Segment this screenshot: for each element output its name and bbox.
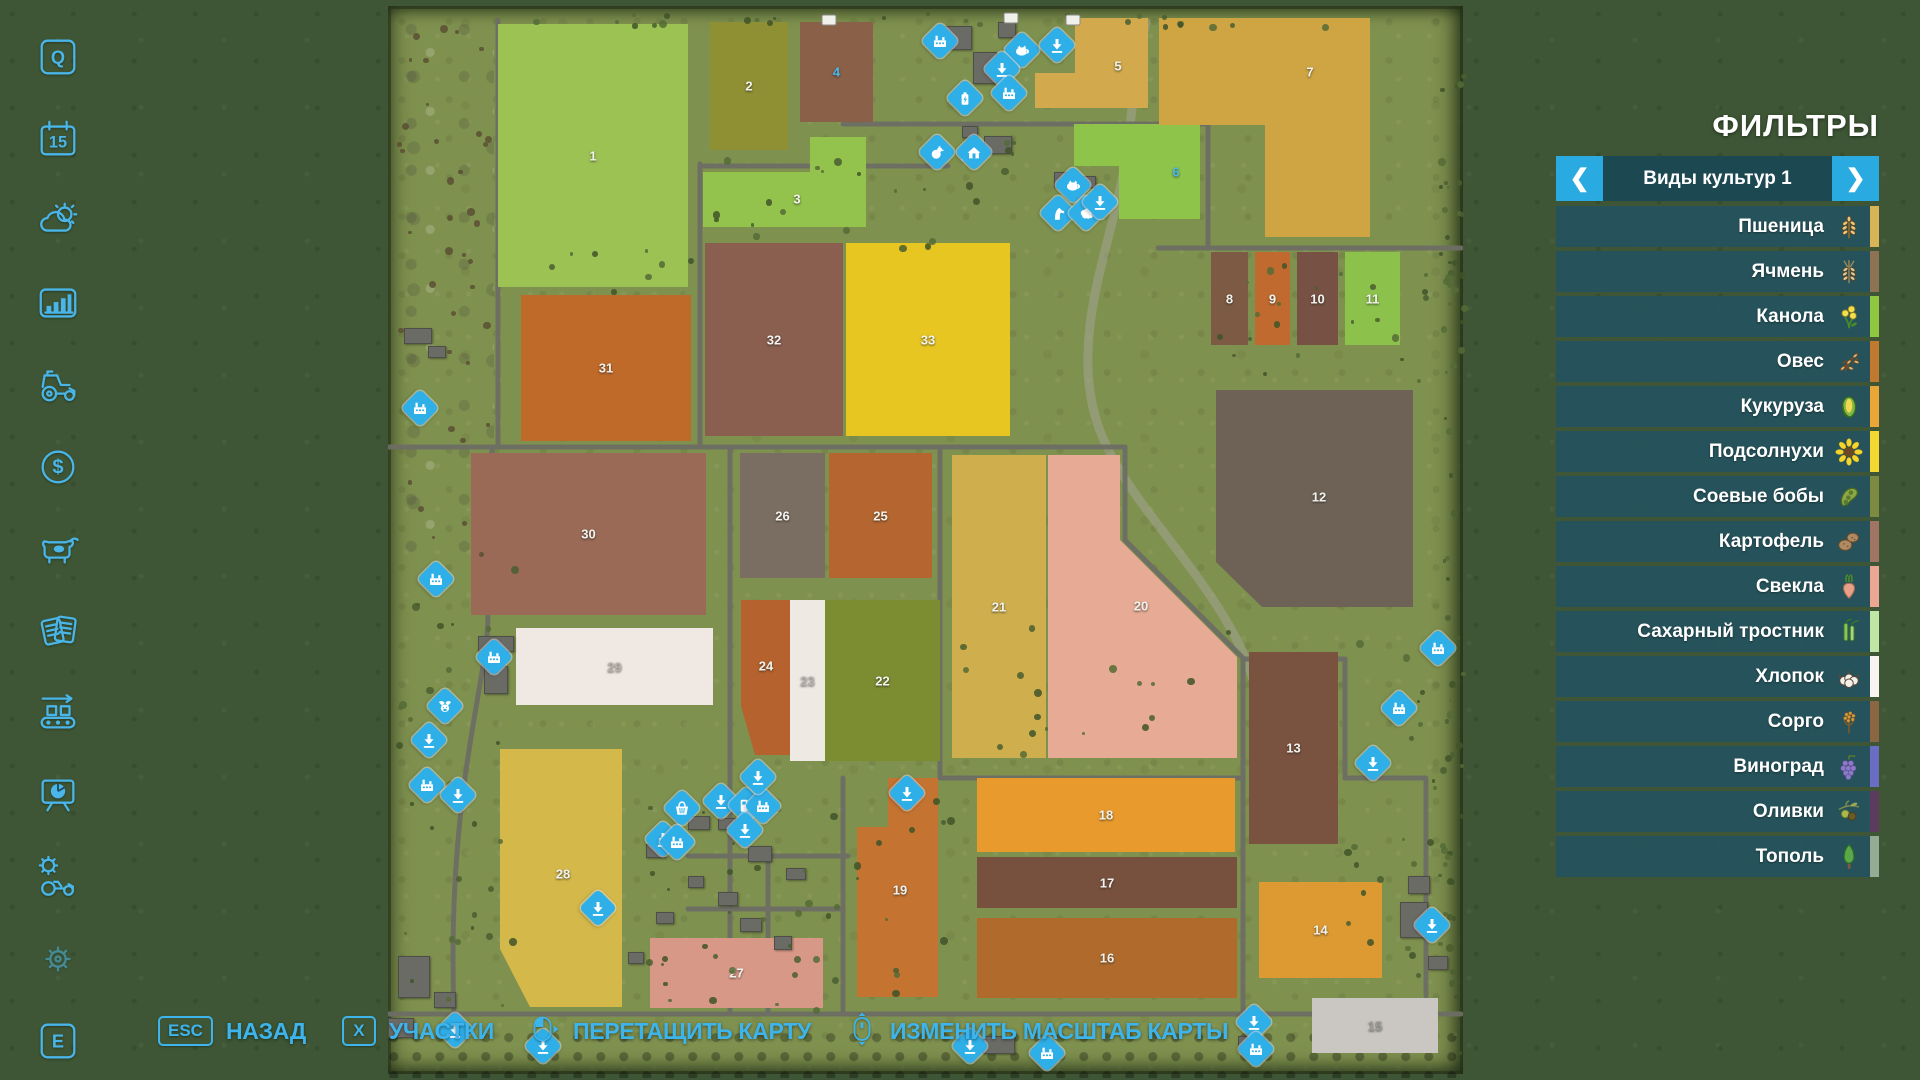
tree bbox=[1361, 890, 1367, 896]
map-building bbox=[656, 912, 674, 924]
crop-color-stripe bbox=[1870, 206, 1879, 247]
keybind-esc[interactable]: ESCНАЗАД bbox=[158, 1016, 306, 1046]
oat-icon bbox=[1832, 345, 1866, 379]
tree bbox=[941, 820, 946, 825]
crop-color-stripe bbox=[1870, 431, 1879, 472]
factory-icon bbox=[411, 399, 429, 417]
tree bbox=[834, 904, 840, 910]
tree bbox=[1440, 767, 1447, 774]
tree bbox=[977, 22, 982, 27]
tree bbox=[960, 644, 967, 651]
sidebar-item-presentation[interactable] bbox=[35, 772, 81, 818]
tree bbox=[1438, 158, 1446, 166]
tree bbox=[1315, 286, 1318, 289]
tree bbox=[1246, 281, 1249, 284]
field-number: 6 bbox=[1172, 165, 1179, 180]
sidebar-item-calendar[interactable]: 15 bbox=[35, 116, 81, 162]
crop-label: Ячмень bbox=[1752, 261, 1824, 283]
crop-filter-cotton[interactable]: Хлопок bbox=[1556, 656, 1879, 697]
tree bbox=[728, 911, 731, 914]
tree bbox=[1461, 305, 1468, 312]
tree bbox=[632, 23, 637, 28]
field-number: 24 bbox=[759, 659, 773, 674]
crop-filter-potato[interactable]: Картофель bbox=[1556, 521, 1879, 562]
tree bbox=[501, 1004, 504, 1007]
map-building bbox=[398, 956, 430, 998]
tree bbox=[947, 817, 955, 825]
tree bbox=[1452, 287, 1459, 294]
crop-color-stripe bbox=[1870, 521, 1879, 562]
crop-label: Соевые бобы bbox=[1693, 486, 1824, 508]
field-number: 25 bbox=[873, 508, 887, 523]
tree bbox=[1439, 185, 1443, 189]
crop-filter-list: ПшеницаЯчменьКанолаОвесКукурузаПодсолнух… bbox=[1556, 206, 1879, 877]
tree bbox=[498, 839, 503, 844]
tree bbox=[1226, 630, 1231, 635]
field-number: 8 bbox=[1226, 291, 1233, 306]
crop-filter-barley[interactable]: Ячмень bbox=[1556, 251, 1879, 292]
olive-icon bbox=[1832, 795, 1866, 829]
crop-category-selector: ❮ Виды культур 1 ❯ bbox=[1556, 156, 1879, 201]
svg-text:Q: Q bbox=[51, 48, 65, 68]
crop-color-stripe bbox=[1870, 566, 1879, 607]
tree bbox=[1403, 654, 1410, 661]
down-icon bbox=[736, 821, 754, 839]
crop-filter-canola[interactable]: Канола bbox=[1556, 296, 1879, 337]
contracts-icon bbox=[35, 608, 81, 654]
down-icon bbox=[1048, 36, 1066, 54]
key-badge: ESC bbox=[158, 1016, 213, 1046]
tree bbox=[668, 999, 672, 1003]
down-icon bbox=[712, 792, 730, 810]
tree bbox=[1461, 74, 1466, 79]
map-building bbox=[748, 846, 772, 862]
horse-icon bbox=[1049, 204, 1067, 222]
tree bbox=[1459, 1051, 1462, 1054]
settings-icon bbox=[35, 936, 81, 982]
tree bbox=[1438, 942, 1443, 947]
tree bbox=[1445, 719, 1450, 724]
down-icon bbox=[1091, 193, 1109, 211]
tree bbox=[483, 322, 490, 329]
crop-label: Картофель bbox=[1719, 531, 1824, 553]
tree bbox=[446, 997, 451, 1002]
tree bbox=[882, 16, 886, 20]
tree bbox=[1400, 358, 1403, 361]
beet-icon bbox=[1832, 570, 1866, 604]
tree bbox=[663, 982, 668, 987]
down-icon bbox=[420, 731, 438, 749]
tree bbox=[1445, 235, 1450, 240]
tree bbox=[570, 252, 573, 255]
sidebar-item-key-q[interactable]: Q bbox=[35, 34, 81, 80]
tree bbox=[476, 131, 482, 137]
field-number: 17 bbox=[1100, 875, 1114, 890]
factory-icon bbox=[1000, 84, 1018, 102]
tree bbox=[1450, 363, 1457, 370]
mouse-scroll-icon bbox=[847, 1012, 877, 1051]
tree bbox=[1125, 19, 1131, 25]
sidebar-item-key-e[interactable]: E bbox=[35, 1018, 81, 1064]
field-number: 31 bbox=[599, 361, 613, 376]
tree bbox=[398, 328, 403, 333]
tree bbox=[1424, 273, 1428, 277]
keybind-mouse-scroll[interactable]: ИЗМЕНИТЬ МАСШТАБ КАРТЫ bbox=[847, 1012, 1228, 1051]
tree bbox=[894, 972, 900, 978]
svg-text:E: E bbox=[52, 1032, 64, 1052]
tree bbox=[650, 871, 655, 876]
map-building bbox=[628, 952, 644, 964]
tree bbox=[780, 209, 786, 215]
vehicle-marker bbox=[1004, 13, 1019, 24]
prev-category-button[interactable]: ❮ bbox=[1556, 156, 1603, 201]
tree bbox=[1005, 147, 1012, 154]
field-number: 18 bbox=[1099, 808, 1113, 823]
filters-title: ФИЛЬТРЫ bbox=[1556, 108, 1879, 144]
tree bbox=[1137, 13, 1142, 18]
crop-color-stripe bbox=[1870, 656, 1879, 697]
sidebar-item-garage[interactable] bbox=[35, 854, 81, 900]
tree bbox=[1354, 862, 1360, 868]
tree bbox=[467, 208, 474, 215]
tree bbox=[1447, 914, 1452, 919]
tree bbox=[1455, 636, 1460, 641]
tree bbox=[1356, 640, 1364, 648]
tree bbox=[1209, 24, 1216, 31]
map-building bbox=[688, 876, 704, 888]
tree bbox=[511, 566, 519, 574]
tree bbox=[448, 426, 455, 433]
map-building bbox=[998, 22, 1016, 38]
keybind-mouse-drag[interactable]: ПЕРЕТАЩИТЬ КАРТУ bbox=[530, 1012, 811, 1051]
tree bbox=[1187, 678, 1195, 686]
tree bbox=[1409, 952, 1416, 959]
filters-panel: ФИЛЬТРЫ ❮ Виды культур 1 ❯ ПшеницаЯчмень… bbox=[1556, 108, 1879, 881]
field-number: 2 bbox=[745, 79, 752, 94]
bull-icon bbox=[436, 697, 454, 715]
map-building bbox=[434, 992, 456, 1008]
tree bbox=[486, 933, 493, 940]
field-number: 26 bbox=[775, 508, 789, 523]
tree bbox=[1109, 665, 1117, 673]
tree bbox=[455, 939, 460, 944]
sorghum-icon bbox=[1832, 705, 1866, 739]
tree bbox=[1045, 727, 1049, 731]
tree bbox=[1458, 347, 1465, 354]
map-building bbox=[718, 892, 738, 906]
field-number: 29 bbox=[607, 659, 621, 674]
vehicle-marker bbox=[822, 15, 837, 26]
tree bbox=[1416, 973, 1421, 978]
field-number: 5 bbox=[1114, 59, 1121, 74]
field-number: 16 bbox=[1100, 951, 1114, 966]
tree bbox=[1449, 980, 1456, 987]
field-number: 28 bbox=[556, 867, 570, 882]
tree bbox=[1217, 334, 1223, 340]
tree bbox=[894, 189, 898, 193]
farm-map[interactable]: 1234567891011121314151617181920212223242… bbox=[388, 6, 1463, 1074]
crop-filter-olive[interactable]: Оливки bbox=[1556, 791, 1879, 832]
tree bbox=[688, 258, 694, 264]
tree bbox=[1460, 212, 1465, 217]
soybean-icon bbox=[1832, 480, 1866, 514]
tree bbox=[1420, 690, 1425, 695]
map-building bbox=[1428, 956, 1448, 970]
tree bbox=[933, 798, 940, 805]
crop-label: Сахарный тростник bbox=[1637, 621, 1824, 643]
tree bbox=[645, 274, 651, 280]
sidebar-item-weather[interactable] bbox=[35, 198, 81, 244]
crop-color-stripe bbox=[1870, 746, 1879, 787]
crop-color-stripe bbox=[1870, 791, 1879, 832]
tree bbox=[652, 23, 657, 28]
tree bbox=[834, 158, 842, 166]
tree bbox=[445, 247, 453, 255]
tree bbox=[803, 869, 807, 873]
tree bbox=[462, 253, 466, 257]
crop-label: Виноград bbox=[1733, 756, 1824, 778]
crop-label: Свекла bbox=[1756, 576, 1824, 598]
chicken-icon bbox=[928, 143, 946, 161]
key-e-icon: E bbox=[35, 1018, 81, 1064]
tree bbox=[458, 170, 462, 174]
field-number: 1 bbox=[589, 148, 596, 163]
tree bbox=[400, 149, 405, 154]
tree bbox=[426, 687, 434, 695]
crop-color-stripe bbox=[1870, 611, 1879, 652]
crop-color-stripe bbox=[1870, 701, 1879, 742]
crop-filter-oat[interactable]: Овес bbox=[1556, 341, 1879, 382]
tree bbox=[744, 17, 751, 24]
tree bbox=[1448, 261, 1451, 264]
tree bbox=[788, 944, 792, 948]
animals-icon bbox=[35, 526, 81, 572]
tree bbox=[659, 20, 667, 28]
tree bbox=[754, 865, 761, 872]
factory-icon bbox=[427, 570, 445, 588]
tree bbox=[592, 251, 598, 257]
tree bbox=[857, 172, 861, 176]
crop-filter-poplar[interactable]: Тополь bbox=[1556, 836, 1879, 877]
tree bbox=[662, 956, 668, 962]
home-icon bbox=[965, 143, 983, 161]
factory-icon bbox=[931, 32, 949, 50]
tree bbox=[398, 705, 403, 710]
crop-label: Хлопок bbox=[1755, 666, 1824, 688]
tree bbox=[1440, 88, 1444, 92]
tree bbox=[1232, 354, 1235, 357]
field-number: 19 bbox=[893, 883, 907, 898]
tree bbox=[1411, 861, 1417, 867]
field-number: 4 bbox=[833, 65, 840, 80]
battery-icon bbox=[956, 89, 974, 107]
down-icon bbox=[1364, 754, 1382, 772]
hud-sidebar: Q15$E bbox=[30, 34, 86, 1064]
tree bbox=[611, 289, 616, 294]
vehicle-marker bbox=[1066, 15, 1081, 26]
next-category-button[interactable]: ❯ bbox=[1832, 156, 1879, 201]
tree bbox=[474, 220, 480, 226]
tree bbox=[1162, 15, 1167, 20]
tree bbox=[1457, 180, 1462, 185]
field-number: 9 bbox=[1269, 291, 1276, 306]
tree bbox=[509, 938, 517, 946]
tree bbox=[447, 177, 454, 184]
crop-color-stripe bbox=[1870, 341, 1879, 382]
presentation-icon bbox=[35, 772, 81, 818]
sugarcane-icon bbox=[1832, 615, 1866, 649]
sidebar-item-finances[interactable]: $ bbox=[35, 444, 81, 490]
factory-icon bbox=[754, 797, 772, 815]
keybind-label: НАЗАД bbox=[226, 1018, 306, 1045]
crop-label: Овес bbox=[1777, 351, 1824, 373]
keybind-label: ПЕРЕТАЩИТЬ КАРТУ bbox=[573, 1018, 811, 1045]
sunflower-icon bbox=[1832, 435, 1866, 469]
tree bbox=[437, 623, 443, 629]
crop-label: Тополь bbox=[1756, 846, 1824, 868]
tree bbox=[727, 869, 733, 875]
tree bbox=[1459, 272, 1467, 280]
field-number: 13 bbox=[1286, 741, 1300, 756]
tree bbox=[1447, 878, 1454, 885]
sidebar-item-settings[interactable] bbox=[35, 936, 81, 982]
vehicles-icon bbox=[35, 362, 81, 408]
tree bbox=[632, 13, 636, 17]
tree bbox=[997, 744, 1003, 750]
sidebar-item-animals[interactable] bbox=[35, 526, 81, 572]
tree bbox=[773, 17, 776, 20]
tree bbox=[1012, 141, 1016, 145]
crop-filter-sorghum[interactable]: Сорго bbox=[1556, 701, 1879, 742]
down-icon bbox=[1245, 1013, 1263, 1031]
tree bbox=[753, 233, 759, 239]
tree bbox=[1445, 371, 1448, 374]
keybind-label: УЧАСТКИ bbox=[389, 1018, 494, 1045]
crop-filter-corn[interactable]: Кукуруза bbox=[1556, 386, 1879, 427]
crop-filter-wheat[interactable]: Пшеница bbox=[1556, 206, 1879, 247]
tree bbox=[1422, 289, 1428, 295]
tree bbox=[659, 261, 666, 268]
game-screen: Q15$E 1234567891011121314151617181920212… bbox=[0, 0, 1920, 1080]
crop-color-stripe bbox=[1870, 836, 1879, 877]
crop-label: Кукуруза bbox=[1741, 396, 1824, 418]
tree bbox=[1446, 944, 1454, 952]
corn-icon bbox=[1832, 390, 1866, 424]
tree bbox=[412, 603, 420, 611]
basket-icon bbox=[673, 799, 691, 817]
map-building bbox=[404, 328, 432, 344]
tree bbox=[434, 139, 439, 144]
sidebar-item-contracts[interactable] bbox=[35, 608, 81, 654]
tree bbox=[1163, 24, 1169, 30]
down-icon bbox=[898, 784, 916, 802]
down-icon bbox=[449, 786, 467, 804]
keybind-x[interactable]: XУЧАСТКИ bbox=[342, 1016, 494, 1046]
field-number: 23 bbox=[800, 673, 814, 688]
field-number: 15 bbox=[1368, 1018, 1382, 1033]
stats-icon bbox=[35, 280, 81, 326]
factory-icon bbox=[1390, 699, 1408, 717]
down-icon bbox=[589, 899, 607, 917]
weather-icon bbox=[35, 198, 81, 244]
down-icon bbox=[1423, 916, 1441, 934]
tree bbox=[396, 742, 403, 749]
crop-filter-sugarcane[interactable]: Сахарный тростник bbox=[1556, 611, 1879, 652]
field-number: 32 bbox=[767, 332, 781, 347]
down-icon bbox=[749, 768, 767, 786]
crop-filter-soybean[interactable]: Соевые бобы bbox=[1556, 476, 1879, 517]
tree bbox=[462, 521, 467, 526]
map-building bbox=[428, 346, 446, 358]
field-number: 30 bbox=[581, 527, 595, 542]
tree bbox=[1457, 81, 1464, 88]
tree bbox=[973, 198, 980, 205]
key-badge: X bbox=[342, 1016, 376, 1046]
tree bbox=[966, 182, 973, 189]
tree bbox=[724, 157, 732, 165]
tree bbox=[1004, 140, 1010, 146]
crop-color-stripe bbox=[1870, 251, 1879, 292]
tree bbox=[1460, 320, 1464, 324]
tree bbox=[766, 199, 772, 205]
keybind-bar: ESCНАЗАДXУЧАСТКИПЕРЕТАЩИТЬ КАРТУИЗМЕНИТЬ… bbox=[158, 1012, 1228, 1050]
tree bbox=[775, 1003, 778, 1006]
tree bbox=[1460, 814, 1465, 819]
factory-icon bbox=[1247, 1040, 1265, 1058]
field-number: 11 bbox=[1366, 291, 1380, 306]
tree bbox=[767, 20, 773, 26]
tree bbox=[1460, 764, 1464, 768]
field-number: 12 bbox=[1312, 490, 1326, 505]
tree bbox=[1351, 320, 1354, 323]
tree bbox=[1444, 181, 1448, 185]
tree bbox=[1453, 1032, 1457, 1036]
sidebar-item-stats[interactable] bbox=[35, 280, 81, 326]
crop-filter-grape[interactable]: Виноград bbox=[1556, 746, 1879, 787]
factory-icon bbox=[485, 648, 503, 666]
field-number: 21 bbox=[992, 599, 1006, 614]
tree bbox=[729, 967, 736, 974]
crop-color-stripe bbox=[1870, 386, 1879, 427]
tree bbox=[1392, 334, 1400, 342]
tree bbox=[1449, 681, 1456, 688]
crop-color-stripe bbox=[1870, 296, 1879, 337]
crop-filter-sunflower[interactable]: Подсолнухи bbox=[1556, 431, 1879, 472]
sidebar-item-vehicles[interactable] bbox=[35, 362, 81, 408]
pig-icon bbox=[1013, 41, 1031, 59]
crop-label: Оливки bbox=[1753, 801, 1824, 823]
tree bbox=[410, 802, 413, 805]
svg-text:$: $ bbox=[52, 457, 63, 479]
field-number: 7 bbox=[1306, 65, 1313, 80]
tree bbox=[402, 123, 409, 130]
sidebar-item-production[interactable] bbox=[35, 690, 81, 736]
pig-icon bbox=[1064, 176, 1082, 194]
tree bbox=[423, 58, 429, 64]
tree bbox=[702, 944, 708, 950]
tree bbox=[732, 842, 735, 845]
tree bbox=[1020, 751, 1027, 758]
garage-icon bbox=[35, 854, 81, 900]
tree bbox=[755, 18, 759, 22]
tree bbox=[1322, 24, 1329, 31]
crop-label: Канола bbox=[1756, 306, 1824, 328]
poplar-icon bbox=[1832, 840, 1866, 874]
tree bbox=[1405, 946, 1410, 951]
tree bbox=[397, 142, 401, 146]
crop-filter-beet[interactable]: Свекла bbox=[1556, 566, 1879, 607]
mouse-drag-icon bbox=[530, 1012, 560, 1051]
